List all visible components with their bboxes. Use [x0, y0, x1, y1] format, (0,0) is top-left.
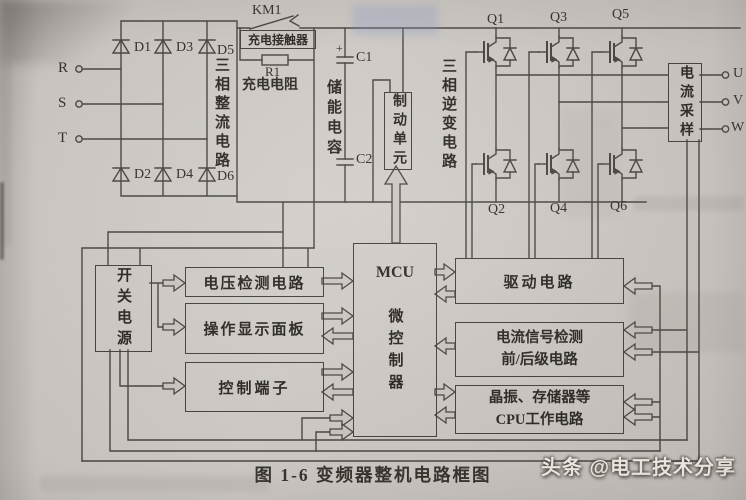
d3-label: D3	[176, 41, 193, 55]
cpu-line1: 晶振、存储器等	[489, 388, 591, 409]
phase-s-label: S	[58, 96, 66, 111]
mcu-title: MCU	[376, 264, 414, 282]
arrow-smps-to-terminals	[163, 378, 185, 394]
smps-box: 开关电源	[95, 265, 152, 352]
igbt-q1	[476, 36, 516, 68]
d4-label: D4	[176, 168, 193, 182]
drive-circuit-box: 驱动电路	[455, 258, 624, 304]
q3-label: Q3	[550, 11, 567, 25]
current-detect-line2: 前/后级电路	[501, 350, 578, 372]
rectifier-label: 三相整流电路	[212, 57, 232, 171]
phase-r-label: R	[58, 61, 68, 76]
arrow-detect-to-mcu	[435, 338, 455, 354]
sampling-feedback	[652, 140, 699, 461]
igbt-q4	[539, 148, 579, 180]
display-panel-box: 操作显示面板	[185, 303, 324, 354]
arrow-mcu-to-drive	[435, 264, 455, 280]
inverter-legs	[496, 68, 622, 148]
q6-label: Q6	[610, 200, 627, 214]
current-sampling-box: 电流采样	[668, 63, 702, 142]
inverter-emitters	[496, 180, 622, 202]
igbt-q3	[539, 36, 579, 68]
mcu-box: MCU 微控制器	[353, 243, 437, 437]
cpu-circuit-box: 晶振、存储器等 CPU工作电路	[455, 385, 624, 434]
contactor-name-box: 充电接触器	[240, 30, 316, 49]
arrow-voltage-to-mcu	[322, 273, 353, 289]
arrow-feedback-to-mcu-2	[330, 424, 353, 440]
current-detect-line1: 电流信号检测	[496, 328, 583, 350]
q5-label: Q5	[612, 8, 629, 22]
arrow-into-cpu-right-1	[624, 394, 652, 410]
arrow-into-detect-right-2	[624, 344, 652, 360]
inverter-label: 三相逆变电路	[439, 58, 459, 176]
capacitor-c2	[337, 159, 353, 165]
arrow-smps-to-voltage	[163, 275, 185, 291]
output-leads	[700, 75, 722, 129]
arrow-into-drive-right	[624, 278, 652, 294]
inverter-collectors	[496, 28, 622, 36]
cpu-line2: CPU工作电路	[496, 410, 584, 431]
c1-polarity: +	[336, 42, 343, 54]
capacitor-c1	[337, 57, 353, 63]
km1-label: KM1	[252, 4, 282, 18]
d2-label: D2	[134, 168, 151, 182]
arrow-drive-to-mcu	[435, 286, 455, 302]
charge-branch	[240, 28, 314, 248]
arrow-mcu-to-cpu	[435, 384, 455, 400]
arrow-mcu-to-terminals	[322, 384, 353, 400]
q4-label: Q4	[550, 202, 567, 216]
c1-label: C1	[356, 51, 372, 65]
arrow-mcu-to-brake	[385, 166, 407, 243]
arrow-into-cpu-right-2	[624, 409, 652, 425]
c2-label: C2	[356, 153, 372, 167]
terminal-t	[76, 136, 82, 142]
d1-label: D1	[134, 41, 151, 55]
arrow-mcu-to-panel	[322, 328, 353, 344]
phase-w-label: W	[731, 121, 744, 135]
arrow-panel-to-mcu	[322, 308, 353, 324]
mcu-feedback-stubs	[302, 418, 330, 451]
charge-resistor-label: 充电电阻	[242, 79, 298, 93]
mcu-name: 微控制器	[385, 292, 406, 412]
arrow-into-detect-right-1	[624, 322, 652, 338]
storage-cap-label: 储能电容	[326, 79, 344, 159]
terminal-w	[722, 126, 728, 132]
d5-label: D5	[217, 44, 234, 58]
scanned-page: R S T D1 D3 D5 D2 D4 D6 三相整流电路 KM1 充电接触器…	[0, 0, 746, 500]
terminal-r	[76, 66, 82, 72]
voltage-detect-box: 电压检测电路	[185, 267, 324, 297]
q1-label: Q1	[487, 13, 504, 27]
arrow-cpu-to-mcu	[435, 407, 455, 423]
arrow-smps-to-panel	[163, 319, 185, 335]
control-terminals-box: 控制端子	[185, 362, 324, 412]
igbt-q6	[602, 148, 642, 180]
r1-label: R1	[265, 65, 280, 78]
phase-taps	[496, 75, 668, 128]
terminal-v	[722, 99, 728, 105]
q2-label: Q2	[488, 203, 505, 217]
phase-t-label: T	[58, 131, 67, 146]
igbt-q5	[602, 36, 642, 68]
terminal-u	[722, 72, 728, 78]
input-leads	[82, 69, 207, 139]
phase-v-label: V	[733, 94, 743, 108]
igbt-q2	[476, 148, 516, 180]
arrow-terminals-to-mcu	[322, 364, 353, 380]
brake-unit-box: 制动单元	[384, 92, 412, 170]
watermark-text: 头条 @电工技术分享	[541, 451, 736, 480]
terminal-s	[76, 101, 82, 107]
gate-wires	[466, 52, 602, 258]
right-feedback	[652, 286, 660, 451]
dc-bus-negative	[237, 196, 646, 202]
d6-label: D6	[217, 170, 234, 184]
phase-u-label: U	[733, 67, 743, 81]
current-detect-box: 电流信号检测 前/后级电路	[455, 322, 624, 377]
